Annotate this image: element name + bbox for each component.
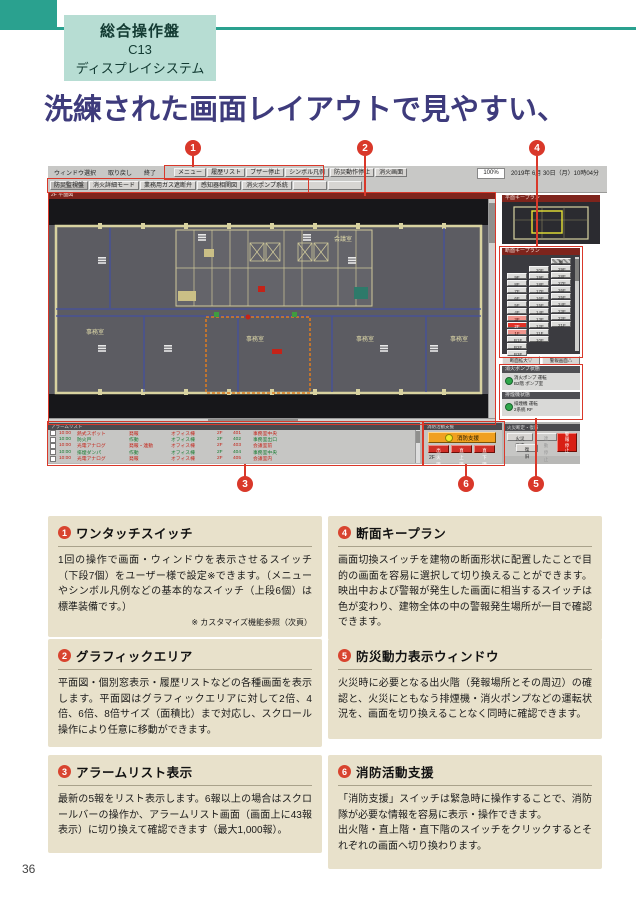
floor-button[interactable]: 10F (529, 336, 549, 342)
floor-button[interactable]: 3F (507, 315, 527, 321)
one-touch-switch-button[interactable] (328, 181, 362, 190)
floor-button[interactable]: 1F (507, 329, 527, 335)
one-touch-switch-button[interactable]: 消火詳細モード (89, 181, 139, 190)
brochure-page: 総合操作盤 C13 ディスプレイシステム 洗練された画面レイアウトで見やすい、 … (0, 0, 636, 900)
feature-body: 火災時に必要となる出火階（発報場所とその周辺）の確認と、火災にともなう排煙機・消… (338, 676, 592, 723)
overview-panel-title: 平面キープラン (502, 195, 600, 202)
alarm-location: 会議室内 (253, 455, 313, 462)
menu-bar: ウィンドウ選択取り戻し終了 メニュー履歴リストブザー停止シンボル凡例防災動作停止… (48, 166, 607, 180)
fire-floor-button[interactable]: 直下階 (474, 445, 495, 453)
fire-floor-buttons: 出火階直上階直下階 (428, 445, 495, 453)
one-touch-switch-button[interactable]: 消火ポンプ系統 (242, 181, 292, 190)
alarm-scrollbar[interactable] (415, 430, 420, 463)
floor-button[interactable]: B1F (507, 336, 527, 342)
feature-title: 消防活動支援 (356, 762, 434, 781)
page-title: 洗練された画面レイアウトで見やすい、 (44, 86, 566, 128)
keyplan-scrollbar[interactable] (575, 257, 579, 351)
feature-box-header: 6 消防活動支援 (338, 762, 592, 786)
page-number: 36 (22, 862, 35, 876)
fire-floor-label: 2F (429, 455, 435, 461)
fan-status-panel: 排煙機状態 排煙機 運転 2系統 RF (502, 392, 580, 416)
alarm-device: 光電アナログ (77, 455, 129, 462)
floor-button[interactable]: 5F (507, 301, 527, 307)
feature-box-header: 5 防災動力表示ウィンドウ (338, 646, 592, 670)
floor-button[interactable]: 26F (551, 286, 571, 292)
zoom-level[interactable]: 100% (477, 168, 505, 179)
floor-button[interactable]: 16F (529, 294, 549, 300)
feature-body: 1回の操作で画面・ウィンドウを表示させるスイッチ（下段7個）をユーザー様で設定※… (58, 553, 312, 615)
keyplan-action-button[interactable]: 断面拡大▽ (502, 356, 540, 365)
alarm-zone: 401 (233, 431, 253, 436)
one-touch-switch-group: 防災監視盤消火詳細モード業務用ガス遮断弁感知器相関図消火ポンプ系統 (50, 181, 363, 190)
fire-support-panel: 消防活動支援 消防支援 出火階直上階直下階 2F (424, 423, 502, 463)
menu-item[interactable]: 終了 (144, 168, 156, 177)
alarm-checkbox[interactable] (50, 437, 56, 443)
room-label: 事務室 (450, 335, 468, 343)
one-touch-switch-button[interactable]: 業務用ガス遮断弁 (140, 181, 196, 190)
pump-status-panel: 消火ポンプ状態 消火ポンプ 運転 B2階 ポンプ室 (502, 366, 580, 390)
pump-location-line: B2階 ポンプ室 (514, 381, 577, 387)
feature-box: 4 断面キープラン 画面切換スイッチを建物の断面形状に配置したことで目的の画面を… (328, 516, 602, 640)
room-label: 事務室 (356, 335, 374, 343)
lamp-icon (445, 434, 453, 442)
product-type: ディスプレイシステム (76, 58, 205, 77)
menu-left-items: ウィンドウ選択取り戻し終了 (48, 168, 162, 177)
alarm-zone: 402 (233, 437, 253, 442)
alarm-zone: 405 (233, 456, 253, 461)
teal-corner-block (0, 0, 57, 27)
keyplan-panel-title: 断面キープラン (502, 248, 580, 255)
room-label: 事務室 (246, 335, 264, 343)
floor-button[interactable]: 2F (507, 322, 527, 328)
feature-number-badge: 3 (58, 765, 71, 778)
feature-box: 3 アラームリスト表示 最新の5報をリスト表示します。6報以上の場合はスクロール… (48, 755, 322, 853)
overview-keyplan-panel: 平面キープラン (502, 195, 600, 244)
floor-button[interactable]: 6F (507, 294, 527, 300)
floor-button[interactable]: 23F (551, 307, 571, 313)
callout-line (364, 156, 366, 196)
feature-box-header: 1 ワンタッチスイッチ (58, 523, 312, 547)
one-touch-switch-button[interactable]: 感知器相関図 (197, 181, 241, 190)
control-panel-screenshot: ウィンドウ選択取り戻し終了 メニュー履歴リストブザー停止シンボル凡例防災動作停止… (48, 166, 607, 467)
alarm-time: 10:00 (59, 443, 77, 448)
alarm-area: オフィス棟 (171, 455, 217, 462)
run-indicator (505, 377, 513, 385)
fan-panel-title: 排煙機状態 (502, 392, 580, 399)
callout-5: 5 (528, 476, 544, 492)
floor-button[interactable]: 4F (507, 308, 527, 314)
callout-3: 3 (237, 476, 253, 492)
floor-button[interactable]: 7F (507, 287, 527, 293)
floor-plan-canvas[interactable]: 事務室 事務室 事務室 事務室 会議室 (48, 199, 489, 419)
callout-line (192, 156, 194, 167)
section-keyplan-panel: 断面キープラン 9F8F7F6F5F4F3F2F1FB1FB2FB3F 20F1… (502, 248, 580, 354)
alarm-rows: 10:00 熱式スポット 発報 オフィス棟 2F 401 事務室中央 10:00… (48, 430, 420, 462)
callout-2: 2 (357, 140, 373, 156)
feature-box: 2 グラフィックエリア 平面図・個別窓表示・履歴リストなどの各種画面を表示します… (48, 639, 322, 747)
feature-number-badge: 5 (338, 649, 351, 662)
fan-location-line: 2系統 RF (514, 407, 577, 413)
room-label: 会議室 (334, 235, 352, 243)
floor-button[interactable]: 13F (529, 315, 549, 321)
feature-number-badge: 4 (338, 526, 351, 539)
alarm-zone: 404 (233, 450, 253, 455)
alarm-checkbox[interactable] (50, 456, 56, 462)
alarm-time: 10:00 (59, 431, 77, 436)
alarm-time: 10:00 (59, 456, 77, 461)
overview-map[interactable] (502, 202, 600, 244)
fire-support-button[interactable]: 消防支援 (428, 432, 496, 443)
floor-button[interactable]: 28F (551, 272, 571, 278)
room-label: 事務室 (86, 328, 104, 336)
feature-box: 5 防災動力表示ウィンドウ 火災時に必要となる出火階（発報場所とその周辺）の確認… (328, 639, 602, 739)
fire-control-panel: 火災断定・復旧 火災断定 連動停止 復旧 警報停止 (504, 424, 580, 456)
one-touch-switch-button[interactable]: 防災監視盤 (50, 181, 88, 190)
datetime-display: 2019年 6月 30日（月）10時04分 (511, 168, 599, 177)
graphic-window-title: 2F 平面図 (48, 192, 495, 199)
alarm-list-panel: アラームリスト 10:00 熱式スポット 発報 オフィス棟 2F 401 事務室… (48, 423, 420, 463)
keyplan-action-button[interactable]: 警報画面△ (542, 356, 580, 365)
floor-button[interactable]: 17F (529, 287, 549, 293)
feature-box: 1 ワンタッチスイッチ 1回の操作で画面・ウィンドウを表示させるスイッチ（下段7… (48, 516, 322, 637)
alarm-time: 10:00 (59, 450, 77, 455)
quick-switch-button[interactable]: 防災動作停止 (330, 168, 374, 177)
alarm-checkbox[interactable] (50, 430, 56, 436)
floor-button[interactable]: 29F (551, 265, 571, 271)
menu-item[interactable]: ウィンドウ選択 (54, 168, 96, 177)
fire-support-button-label: 消防支援 (457, 434, 479, 442)
feature-title: 断面キープラン (356, 523, 446, 542)
control-panel-title: 火災断定・復旧 (504, 424, 580, 431)
alarm-checkbox[interactable] (50, 449, 56, 455)
quick-switch-group: メニュー履歴リストブザー停止シンボル凡例防災動作停止消火画面 (174, 168, 408, 177)
menu-item[interactable]: 取り戻し (108, 168, 132, 177)
product-tag-box: 総合操作盤 C13 ディスプレイシステム (64, 15, 216, 81)
floor-button[interactable]: 19F (529, 273, 549, 279)
alarm-floor: 2F (217, 450, 233, 455)
keyplan-buttons: 断面拡大▽警報画面△ (502, 356, 580, 365)
floor-button[interactable]: 12F (529, 322, 549, 328)
callout-4: 4 (529, 140, 545, 156)
floor-button[interactable]: 22F (551, 314, 571, 320)
feature-body: 最新の5報をリスト表示します。6報以上の場合はスクロールバーの操作か、アラームリ… (58, 792, 312, 839)
quick-switch-button[interactable]: 履歴リスト (207, 168, 245, 177)
alarm-floor: 2F (217, 437, 233, 442)
keyplan-body: 9F8F7F6F5F4F3F2F1FB1FB2FB3F 20F19F18F17F… (502, 255, 580, 354)
feature-number-badge: 6 (338, 765, 351, 778)
callout-line (536, 156, 538, 246)
feature-body-2: 出火階・直上階・直下階のスイッチをクリックするとそれぞれの画面へ切り換わります。 (338, 823, 592, 854)
product-model: C13 (128, 42, 152, 57)
product-name: 総合操作盤 (100, 20, 180, 41)
floor-button[interactable]: 11F (529, 329, 549, 335)
feature-number-badge: 1 (58, 526, 71, 539)
alarm-row[interactable]: 10:00 光電アナログ 発報 オフィス棟 2F 405 会議室内 (48, 456, 420, 462)
alarm-checkbox[interactable] (50, 443, 56, 449)
feature-box: 6 消防活動支援 「消防支援」スイッチは緊急時に操作することで、消防隊が必要な情… (328, 755, 602, 869)
quick-switch-button[interactable]: メニュー (174, 168, 206, 177)
interlock-stop-button[interactable]: 連動停止 (535, 433, 557, 441)
alarm-floor: 2F (217, 443, 233, 448)
one-touch-switch-bar: 防災監視盤消火詳細モード業務用ガス遮断弁感知器相関図消火ポンプ系統 (48, 179, 607, 193)
alarm-floor: 2F (217, 456, 233, 461)
floor-button[interactable]: 27F (551, 279, 571, 285)
keyplan-column-mid: 20F19F18F17F16F15F14F13F12F11F10F (529, 266, 549, 343)
keyplan-column-high: 屋上29F28F27F26F25F24F23F22F21F (551, 258, 571, 328)
feature-body: 画面切換スイッチを建物の断面形状に配置したことで目的の画面を容易に選択して切り換… (338, 553, 592, 631)
floor-button[interactable]: 18F (529, 280, 549, 286)
quick-switch-button[interactable]: ブザー停止 (246, 168, 284, 177)
floor-button[interactable]: 9F (507, 273, 527, 279)
alarm-floor: 2F (217, 431, 233, 436)
feature-body: 平面図・個別窓表示・履歴リストなどの各種画面を表示します。平面図はグラフィックエ… (58, 676, 312, 738)
feature-title: アラームリスト表示 (76, 762, 193, 781)
floor-button[interactable]: 屋上 (551, 258, 571, 264)
quick-switch-button[interactable]: シンボル凡例 (285, 168, 329, 177)
alarm-status: 発報 (129, 455, 171, 462)
feature-title: グラフィックエリア (76, 646, 193, 665)
quick-switch-button[interactable]: 消火画面 (375, 168, 407, 177)
pump-panel-title: 消火ポンプ状態 (502, 366, 580, 373)
floor-button[interactable]: 8F (507, 280, 527, 286)
callout-6: 6 (458, 476, 474, 492)
graphic-area-window: 2F 平面図 (48, 192, 495, 424)
run-indicator (505, 403, 513, 411)
callout-1: 1 (185, 140, 201, 156)
feature-title: ワンタッチスイッチ (76, 523, 193, 542)
floor-plan: 事務室 事務室 事務室 事務室 会議室 (48, 199, 489, 419)
feature-title: 防災動力表示ウィンドウ (356, 646, 499, 665)
floor-button[interactable]: 21F (551, 321, 571, 327)
one-touch-switch-button[interactable] (293, 181, 327, 190)
floor-button[interactable]: 25F (551, 293, 571, 299)
alarm-zone: 403 (233, 443, 253, 448)
feature-note: ※ カスタマイズ機能参照（次頁） (58, 617, 312, 628)
fire-support-title: 消防活動支援 (424, 423, 502, 430)
keyplan-column-low: 9F8F7F6F5F4F3F2F1FB1FB2FB3F (507, 273, 527, 357)
vertical-scrollbar[interactable] (488, 199, 495, 419)
floor-button[interactable]: B2F (507, 343, 527, 349)
floor-button[interactable]: 20F (529, 266, 549, 272)
feature-box-header: 3 アラームリスト表示 (58, 762, 312, 786)
fire-floor-button[interactable]: 出火階 (428, 445, 449, 453)
callout-line (535, 418, 537, 477)
fire-floor-button[interactable]: 直上階 (451, 445, 472, 453)
feature-number-badge: 2 (58, 649, 71, 662)
alarm-stop-button[interactable]: 警報停止 (557, 433, 577, 452)
floor-button[interactable]: 24F (551, 300, 571, 306)
floor-button[interactable]: 15F (529, 301, 549, 307)
alarm-time: 10:00 (59, 437, 77, 442)
feature-box-header: 2 グラフィックエリア (58, 646, 312, 670)
feature-box-header: 4 断面キープラン (338, 523, 592, 547)
feature-body: 「消防支援」スイッチは緊急時に操作することで、消防隊が必要な情報を容易に表示・操… (338, 792, 592, 823)
floor-button[interactable]: 14F (529, 308, 549, 314)
fire-confirm-button[interactable]: 火災断定 (507, 433, 533, 441)
